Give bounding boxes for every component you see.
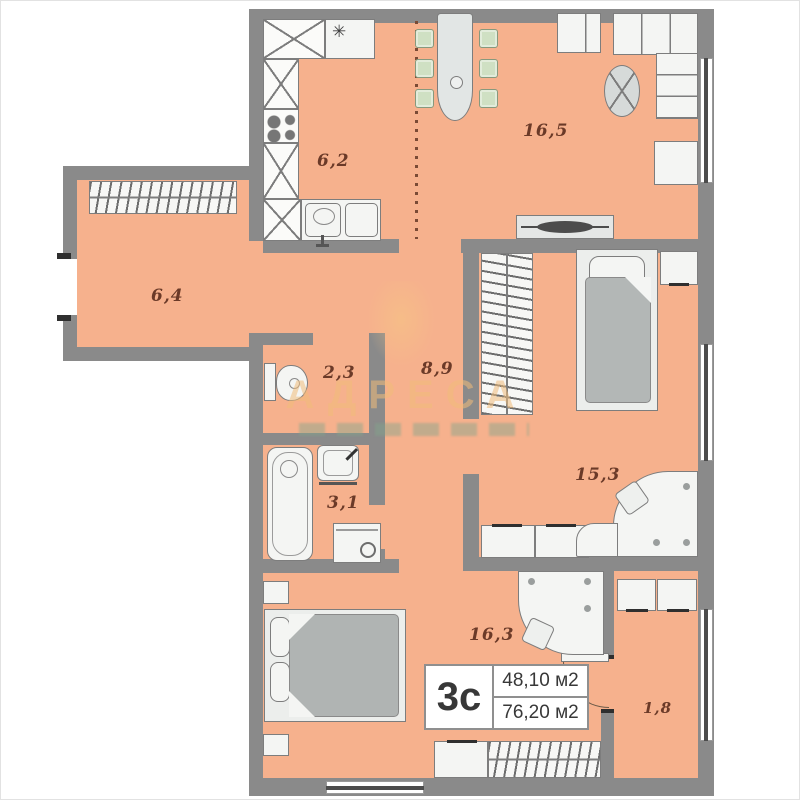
wall (249, 778, 713, 796)
washer-panel-line (336, 529, 378, 531)
wall (263, 333, 313, 345)
washer-door (360, 542, 376, 558)
handle (669, 283, 689, 286)
bathtub-drain (280, 460, 298, 478)
bed-blanket (289, 614, 399, 717)
chair-icon (479, 89, 498, 108)
room-label-hallway: 6,4 (151, 286, 184, 306)
entrance-door-jamb (57, 253, 71, 259)
wall (63, 347, 263, 361)
desk-dot (653, 539, 660, 546)
chair-icon (415, 29, 434, 48)
nightstand-icon (660, 251, 698, 285)
stove-icon (263, 109, 299, 143)
window-glass-line (704, 58, 708, 183)
bathtub-icon (267, 447, 313, 561)
nightstand-icon (263, 734, 289, 756)
wall (463, 239, 479, 419)
sink-tap-base (316, 244, 329, 247)
toilet-bowl-icon (276, 365, 308, 401)
room-label-corridor: 8,9 (421, 359, 454, 379)
window-glass-line (704, 609, 708, 741)
toilet-tank (264, 363, 276, 401)
dresser-icon (481, 525, 535, 558)
total-area-value: 76,20 м2 (494, 698, 587, 728)
window-glass-line (704, 344, 708, 461)
wall (263, 239, 399, 253)
toilet-drain (289, 378, 300, 389)
entrance-door-jamb (57, 315, 71, 321)
tv-icon (537, 221, 593, 233)
desk-dot (584, 578, 591, 585)
room-label-bedroom-right: 15,3 (575, 465, 620, 485)
kitchen-cabinet-icon (263, 19, 325, 59)
kitchen-sink-icon (305, 203, 341, 237)
bed-pillow (270, 662, 290, 702)
nightstand-icon (263, 581, 289, 604)
room-label-bathroom: 3,1 (327, 493, 360, 513)
coat-rack-icon (89, 181, 237, 214)
wall (601, 713, 614, 778)
table-knob (450, 76, 463, 89)
balcony-cabinet-icon (657, 579, 697, 611)
room-label-balcony: 1,8 (643, 699, 672, 717)
wall (463, 557, 698, 571)
chair-icon (415, 59, 434, 78)
cabinet-icon (434, 741, 488, 778)
handle (546, 524, 576, 527)
kitchen-zone-divider (415, 21, 418, 239)
bed-pillow (270, 617, 290, 657)
fridge-icon: ✳ (325, 19, 375, 59)
chair-icon (479, 29, 498, 48)
bed-blanket (585, 277, 651, 403)
desk-dot (683, 539, 690, 546)
desk-dot (683, 483, 690, 490)
sink-base-line (319, 482, 357, 485)
balcony-cabinet-icon (617, 579, 656, 611)
plan-type-code: 3с (426, 666, 494, 728)
plan-info-box: 3с 48,10 м2 76,20 м2 (424, 664, 589, 730)
corner-sofa-side (656, 53, 698, 119)
room-label-living: 16,5 (523, 121, 568, 141)
dining-table-icon (437, 13, 473, 121)
kitchen-cabinet-icon (263, 59, 299, 109)
snowflake-icon: ✳ (332, 22, 346, 42)
dishwasher-icon (345, 203, 378, 237)
handle (447, 740, 477, 743)
coffee-table-icon (604, 65, 640, 117)
tv-stand-icon (516, 215, 614, 239)
blanket-fold (625, 277, 651, 303)
armchair-icon (557, 13, 601, 53)
wall (369, 445, 385, 505)
wall (63, 166, 263, 180)
room-label-kitchen: 6,2 (317, 151, 350, 171)
bathroom-sink-icon (317, 445, 359, 481)
living-area-value: 48,10 м2 (494, 666, 587, 698)
room-label-toilet: 2,3 (323, 363, 356, 383)
blanket-fold (289, 691, 315, 717)
sink-bowl (313, 208, 335, 225)
wardrobe-icon (488, 741, 601, 778)
handle (667, 609, 689, 612)
balcony-door-jamb (601, 709, 614, 713)
desk-dot (528, 578, 535, 585)
corner-desk-extension (576, 523, 618, 557)
desk-dot (584, 605, 591, 612)
blanket-fold (289, 614, 315, 640)
wall (249, 9, 263, 241)
room-label-bedroom-bottom: 16,3 (469, 625, 514, 645)
corner-sofa-top (613, 13, 698, 55)
wall (369, 333, 385, 433)
handle (492, 524, 522, 527)
chair-icon (415, 89, 434, 108)
wall (263, 433, 385, 445)
wall (63, 166, 77, 259)
wardrobe-icon (481, 253, 533, 415)
window-glass-line (326, 786, 424, 790)
washing-machine-icon (333, 523, 381, 563)
kitchen-cabinet-icon (263, 199, 301, 241)
kitchen-cabinet-icon (263, 143, 299, 199)
handle (626, 609, 648, 612)
armchair-icon (654, 141, 698, 185)
floor-hallway-connector (245, 241, 263, 333)
floor-plan: АДРЕСА ✳ (0, 0, 800, 800)
chair-icon (479, 59, 498, 78)
